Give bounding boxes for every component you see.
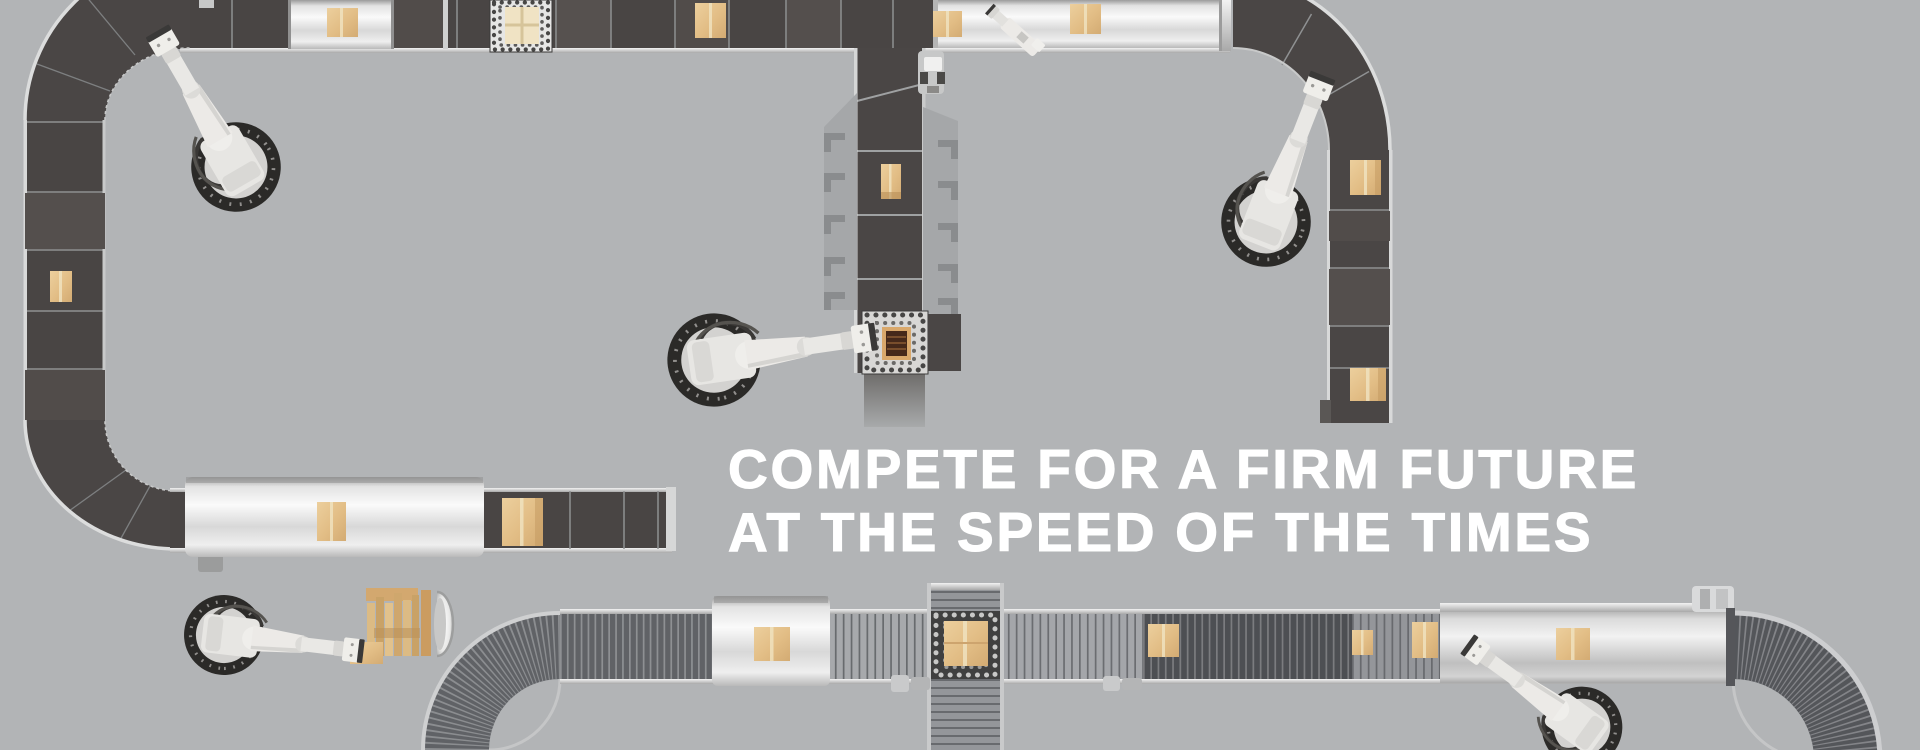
svg-text:AT THE SPEED OF THE TIMES: AT THE SPEED OF THE TIMES	[728, 501, 1593, 563]
svg-text:COMPETE FOR A FIRM FUTURE: COMPETE FOR A FIRM FUTURE	[728, 438, 1639, 500]
